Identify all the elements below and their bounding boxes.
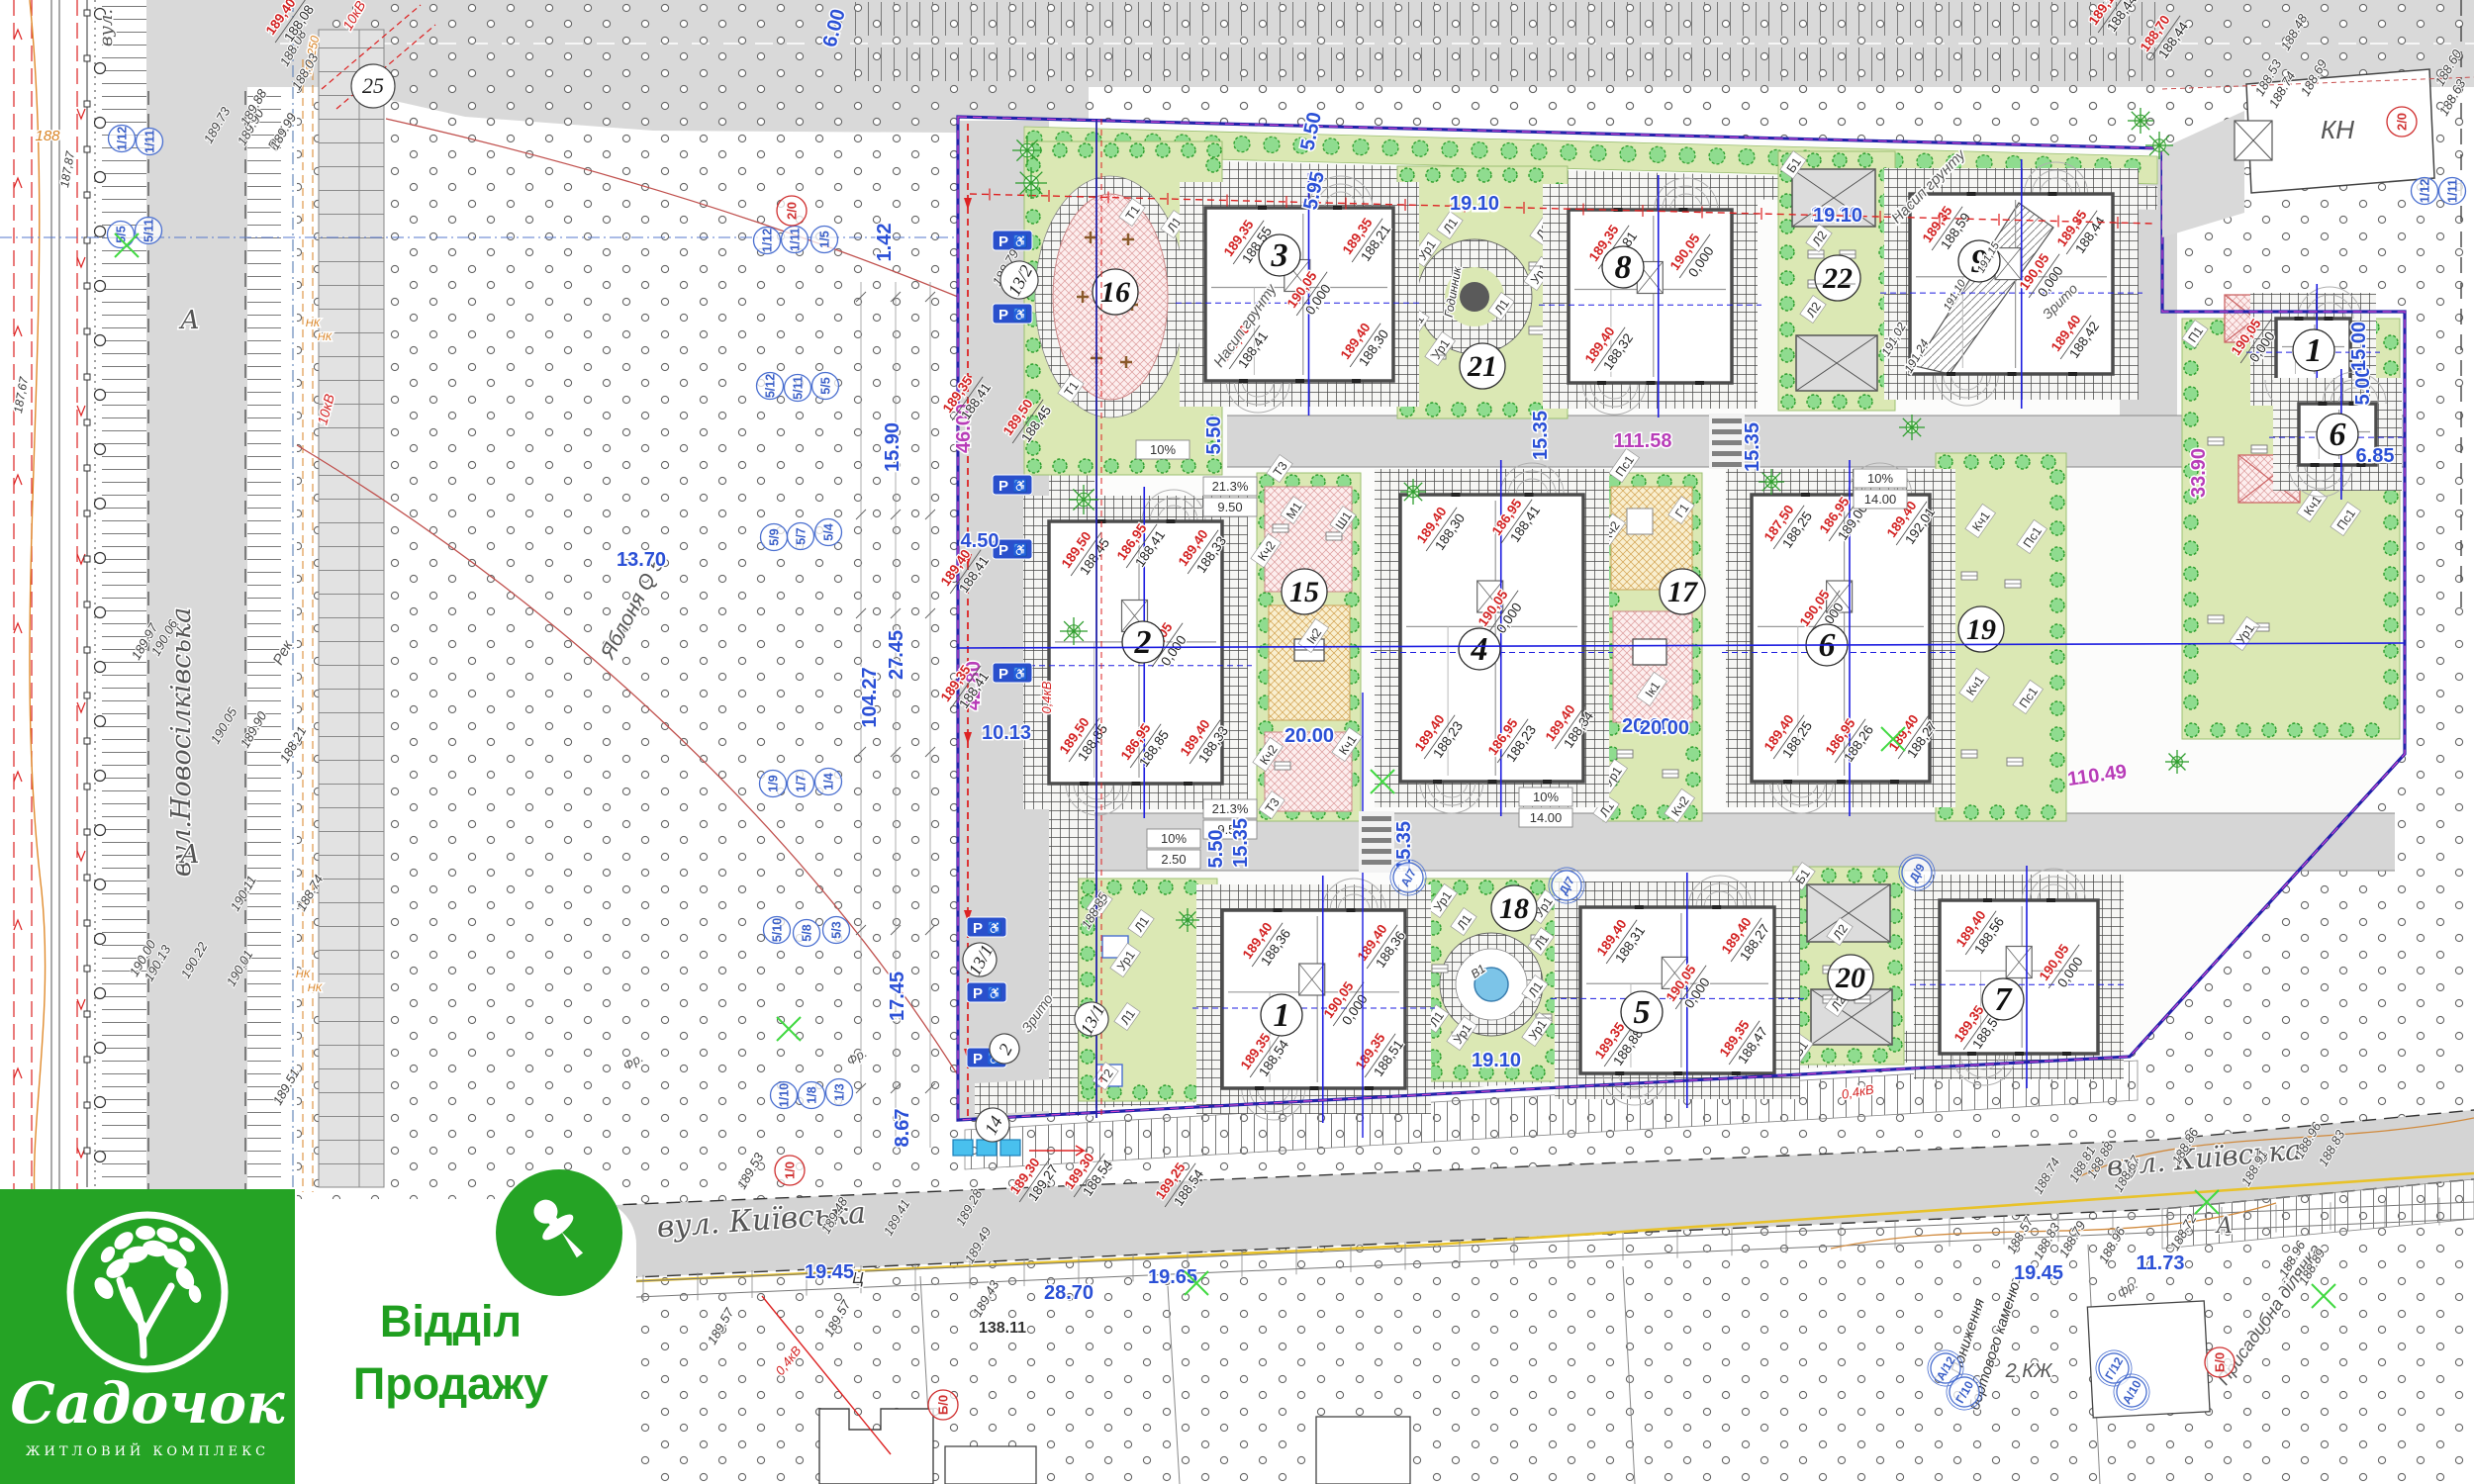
crosswalk <box>1709 414 1745 469</box>
svg-text:9.50: 9.50 <box>1217 500 1242 514</box>
waste-bin <box>953 1140 973 1156</box>
tree-tag: 5/11 <box>785 375 811 402</box>
svg-text:А: А <box>178 306 200 335</box>
svg-text:1: 1 <box>1274 997 1290 1034</box>
tree-tag: 5/8 <box>794 920 820 947</box>
svg-text:20: 20 <box>1835 962 1865 994</box>
svg-text:5.50: 5.50 <box>1203 417 1225 455</box>
tree-tag: 1/7 <box>788 771 814 797</box>
sales-label: Відділ Продажу <box>295 1290 607 1415</box>
svg-text:♿: ♿ <box>1013 543 1028 557</box>
building-6: 187,50188,25186,95189,00189,40192,01189,… <box>1722 460 1959 816</box>
area-22: Б1Л2Л22219.10 <box>1778 151 1895 411</box>
tree-tag: 5/7 <box>788 523 814 550</box>
svg-text:6: 6 <box>2330 417 2346 453</box>
svg-text:0,4кВ: 0,4кВ <box>1039 681 1054 713</box>
svg-text:♿: ♿ <box>1013 308 1028 322</box>
svg-text:2/0: 2/0 <box>785 202 800 220</box>
svg-text:КН: КН <box>2321 115 2354 144</box>
svg-text:1: 1 <box>2306 332 2323 369</box>
building-6: 6 <box>2269 369 2406 500</box>
svg-text:1/12: 1/12 <box>116 127 130 150</box>
conifer-tree <box>1400 479 1426 505</box>
red-ref-tag: Б/0 <box>2205 1347 2235 1377</box>
svg-text:21.3%: 21.3% <box>1212 801 1249 816</box>
svg-text:111.58: 111.58 <box>1614 430 1672 452</box>
svg-text:28.70: 28.70 <box>1044 1282 1094 1304</box>
svg-text:19.10: 19.10 <box>1813 205 1862 227</box>
tree-tag: 1/9 <box>760 771 787 797</box>
svg-text:вул.: вул. <box>96 9 117 46</box>
svg-text:15.35: 15.35 <box>1742 422 1763 472</box>
svg-text:15.35: 15.35 <box>1230 818 1252 868</box>
svg-text:НК: НК <box>306 318 321 329</box>
parking-sign: P♿ <box>993 304 1032 324</box>
svg-text:187,87: 187,87 <box>57 149 77 189</box>
red-ref-tag: 1/0 <box>775 1156 805 1185</box>
svg-text:НК: НК <box>308 982 323 994</box>
svg-text:5/4: 5/4 <box>822 523 836 540</box>
svg-text:5/11: 5/11 <box>792 376 806 400</box>
svg-text:10%: 10% <box>1867 471 1893 486</box>
svg-text:104.27: 104.27 <box>859 667 881 727</box>
svg-text:16: 16 <box>1100 276 1130 309</box>
svg-text:1/9: 1/9 <box>767 775 781 791</box>
svg-text:13.70: 13.70 <box>617 549 666 571</box>
area-20: Б1Л2Л2Б120 <box>1787 863 1904 1065</box>
svg-text:1/11: 1/11 <box>789 228 803 251</box>
svg-text:8: 8 <box>1615 249 1632 286</box>
svg-text:1/5: 1/5 <box>818 231 832 247</box>
building-4: 189,40188,30186,95188,41189,40188,23186,… <box>1371 460 1613 816</box>
svg-text:21: 21 <box>1467 350 1497 383</box>
svg-text:1/8: 1/8 <box>806 1086 819 1103</box>
svg-text:15: 15 <box>1289 576 1319 608</box>
conifer-tree <box>1176 908 1199 932</box>
svg-text:18: 18 <box>1499 892 1529 925</box>
red-ref-tag: 2/0 <box>2387 107 2417 137</box>
red-ref-tag: 2/0 <box>777 196 807 226</box>
svg-text:P: P <box>973 985 983 1002</box>
building-1: 189,40188,36189,40188,36189,35188,54189,… <box>1192 876 1435 1123</box>
svg-text:♿: ♿ <box>988 986 1002 1000</box>
svg-text:2 КЖ: 2 КЖ <box>2005 1360 2053 1382</box>
red-ref-tag: Б/0 <box>928 1390 958 1420</box>
svg-text:♿: ♿ <box>1013 479 1028 493</box>
svg-text:P: P <box>999 307 1008 324</box>
svg-text:3: 3 <box>1271 237 1288 274</box>
svg-text:11.73: 11.73 <box>2137 1252 2185 1274</box>
svg-text:20.00: 20.00 <box>1640 717 1689 739</box>
waste-bin <box>1000 1140 1020 1156</box>
svg-text:15.00: 15.00 <box>2348 322 2370 371</box>
svg-text:1/11: 1/11 <box>2446 179 2460 203</box>
svg-text:4.50: 4.50 <box>961 530 999 552</box>
svg-text:27.45: 27.45 <box>886 630 907 680</box>
svg-text:14.00: 14.00 <box>1530 810 1563 825</box>
sales-line2: Продажу <box>295 1352 607 1415</box>
tree-tag: 1/12 <box>109 126 136 152</box>
svg-text:10%: 10% <box>1533 789 1559 804</box>
svg-text:19.10: 19.10 <box>1450 193 1499 215</box>
tree-tag: 5/9 <box>761 524 788 551</box>
svg-text:♿: ♿ <box>988 921 1002 935</box>
svg-text:5/9: 5/9 <box>768 528 782 545</box>
svg-text:19.45: 19.45 <box>2014 1262 2063 1284</box>
svg-text:1/10: 1/10 <box>778 1083 792 1107</box>
sales-pin-badge <box>496 1169 622 1296</box>
svg-text:P: P <box>973 1051 983 1067</box>
svg-text:P: P <box>973 920 983 937</box>
svg-text:вул.Новосілківська: вул.Новосілківська <box>166 607 197 877</box>
logo-tree-icon <box>62 1207 233 1382</box>
svg-text:1/0: 1/0 <box>783 1161 798 1179</box>
tree-tag: 1/11 <box>137 129 163 155</box>
tree-tag: 1/12 <box>754 228 781 254</box>
building-5: 189,40188,31189,40188,27189,35188,88189,… <box>1551 873 1804 1108</box>
svg-text:5/5: 5/5 <box>819 377 833 394</box>
svg-text:1.42: 1.42 <box>874 224 896 262</box>
ref-circle: 25 <box>351 64 395 108</box>
tree-tag: 1/12 <box>2412 178 2438 205</box>
tree-tag: 5/3 <box>823 917 850 944</box>
svg-text:4: 4 <box>1471 631 1488 668</box>
building-7: 189,40188,56189,35188,56190,050,0007 <box>1910 866 2128 1088</box>
svg-text:6.85: 6.85 <box>2356 445 2395 467</box>
svg-text:20.00: 20.00 <box>1285 725 1334 747</box>
conifer-tree <box>1012 136 1042 165</box>
parking-sign: P♿ <box>993 475 1032 495</box>
conifer-tree <box>1899 415 1925 440</box>
tree-tag: 1/8 <box>799 1082 825 1109</box>
svg-text:P: P <box>999 233 1008 250</box>
logo-subtitle: ЖИТЛОВИЙ КОМПЛЕКС <box>0 1444 295 1459</box>
svg-text:P: P <box>999 478 1008 495</box>
svg-text:10%: 10% <box>1150 442 1176 457</box>
svg-text:19: 19 <box>1966 613 1996 646</box>
conifer-tree <box>2145 132 2173 159</box>
svg-text:♿: ♿ <box>1013 667 1028 681</box>
conifer-tree <box>2128 108 2153 134</box>
logo-panel: Садочок ЖИТЛОВИЙ КОМПЛЕКС <box>0 1189 295 1484</box>
svg-text:5/11: 5/11 <box>143 219 156 242</box>
svg-text:25: 25 <box>362 73 384 98</box>
svg-text:А: А <box>2215 1214 2234 1239</box>
svg-text:21.3%: 21.3% <box>1212 479 1249 494</box>
conifer-tree <box>1069 485 1098 514</box>
svg-text:НК: НК <box>318 331 333 343</box>
tree-tag: 5/5 <box>812 373 839 400</box>
tree-tag: 1/11 <box>782 227 809 253</box>
tree-tag: 1/11 <box>2439 178 2466 205</box>
crosswalk <box>1359 811 1394 873</box>
svg-text:5/8: 5/8 <box>801 924 814 941</box>
area-17: Пс1Г1Кч2Ік1Ур1Л1Кч21720.00 <box>1593 448 1705 822</box>
svg-text:1/7: 1/7 <box>795 775 809 791</box>
svg-text:1/12: 1/12 <box>2419 179 2432 203</box>
svg-text:5/12: 5/12 <box>764 374 778 398</box>
area-15: Т3М1Ш1Кч2Ік2Кч1Кч2Т31520.00 <box>1251 455 1363 821</box>
svg-text:15.35: 15.35 <box>1530 411 1552 460</box>
svg-text:17.45: 17.45 <box>887 972 908 1021</box>
svg-text:1/4: 1/4 <box>822 773 836 789</box>
building-2: 189,50188,45186,95188,41189,40188,33189,… <box>1019 487 1252 818</box>
svg-text:1/12: 1/12 <box>761 229 775 252</box>
conifer-tree <box>1015 167 1047 199</box>
svg-text:33.90: 33.90 <box>2188 448 2210 498</box>
svg-text:2: 2 <box>1134 624 1152 661</box>
svg-text:1/3: 1/3 <box>833 1083 847 1100</box>
tree-tag: 5/12 <box>757 373 784 400</box>
parking-sign: P♿ <box>993 231 1032 250</box>
dots-on-road <box>327 0 2474 134</box>
svg-text:188: 188 <box>35 128 60 144</box>
svg-text:5/3: 5/3 <box>830 921 844 938</box>
parking-sign: P♿ <box>993 663 1032 683</box>
svg-text:187,67: 187,67 <box>11 375 31 415</box>
tree-tag: 1/10 <box>771 1082 798 1109</box>
svg-text:8.67: 8.67 <box>892 1109 913 1148</box>
pushpin-icon <box>510 1179 609 1286</box>
svg-text:P: P <box>999 542 1008 559</box>
conifer-tree <box>1759 469 1784 495</box>
svg-text:5/10: 5/10 <box>771 918 785 942</box>
building-3: 189,35188,55189,35188,21189,40188,41189,… <box>1176 173 1423 416</box>
tree-tag: 1/3 <box>826 1079 853 1106</box>
svg-text:А: А <box>178 840 200 870</box>
tree-tag: 5/11 <box>136 218 162 244</box>
svg-text:2.50: 2.50 <box>1161 852 1186 867</box>
tree-tag: 5/4 <box>815 519 842 546</box>
svg-text:Б/0: Б/0 <box>2213 1352 2228 1372</box>
svg-text:P: P <box>999 666 1008 683</box>
tree-tag: 5/5 <box>108 222 135 248</box>
parking-sign: P♿ <box>967 982 1006 1002</box>
site-plan-page: Т1Л1Т116Л1Л1Ур1Ур1Л1Ур1Л12119.10Б1Л2Л222… <box>0 0 2474 1484</box>
svg-text:7: 7 <box>1995 981 2014 1018</box>
svg-text:138.11: 138.11 <box>979 1320 1026 1337</box>
svg-text:14.00: 14.00 <box>1864 492 1897 507</box>
svg-text:15.90: 15.90 <box>882 422 904 472</box>
svg-text:Б/0: Б/0 <box>936 1395 951 1415</box>
svg-text:19.45: 19.45 <box>805 1261 854 1283</box>
svg-text:17: 17 <box>1667 576 1698 608</box>
svg-text:2/0: 2/0 <box>2395 113 2410 131</box>
tree-tag: 1/4 <box>815 769 842 795</box>
tree-tag: 5/10 <box>764 917 791 944</box>
conifer-tree <box>1060 617 1088 645</box>
ramp-label: 10% <box>1136 440 1189 459</box>
svg-text:НК: НК <box>296 969 311 980</box>
svg-text:19.10: 19.10 <box>1472 1050 1521 1071</box>
conifer-tree <box>2165 750 2189 774</box>
svg-text:5.00: 5.00 <box>2352 367 2374 406</box>
sales-line1: Відділ <box>295 1290 607 1352</box>
svg-text:22: 22 <box>1822 262 1853 295</box>
tree-tag: 1/5 <box>811 227 838 253</box>
svg-text:♿: ♿ <box>1013 234 1028 248</box>
svg-text:10%: 10% <box>1161 831 1187 846</box>
svg-text:10.13: 10.13 <box>982 722 1031 744</box>
parking-sign: P♿ <box>967 917 1006 937</box>
svg-text:5.50: 5.50 <box>1205 830 1227 869</box>
logo-title: Садочок <box>0 1375 295 1432</box>
svg-text:1/11: 1/11 <box>143 130 157 153</box>
svg-text:5: 5 <box>1634 994 1651 1031</box>
svg-text:5/7: 5/7 <box>795 527 809 544</box>
